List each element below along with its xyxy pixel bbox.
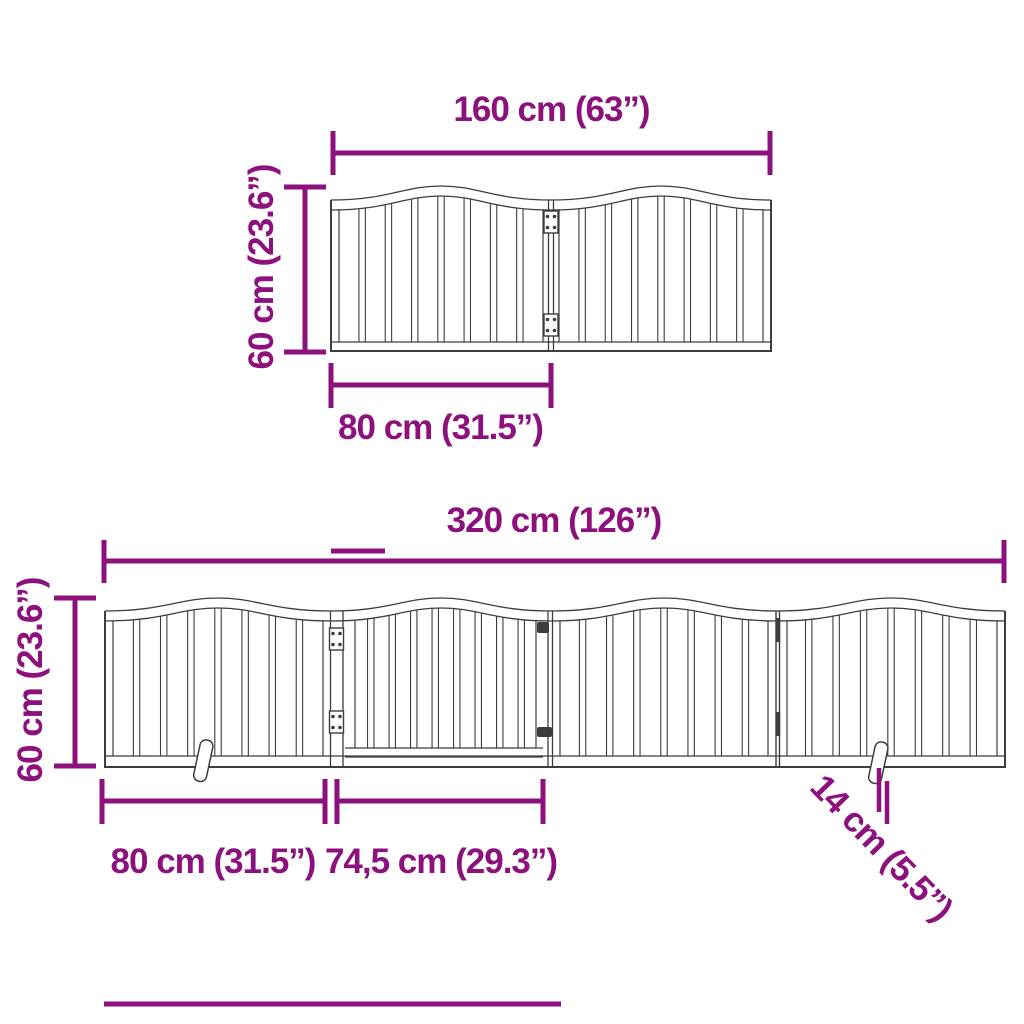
top-gate-panel-width-label: 80 cm (31.5”) (330, 408, 551, 448)
dimension-diagram: 160 cm (63”) 60 cm (23.6”) 80 cm (31.5”)… (0, 0, 1024, 1024)
top-gate-width-label: 160 cm (63”) (333, 90, 770, 130)
bottom-gate-width-label: 320 cm (126”) (104, 501, 1004, 541)
top-gate-height-label: 60 cm (23.6”) (242, 107, 282, 427)
bottom-gate-height-label: 60 cm (23.6”) (11, 520, 51, 840)
bottom-gate-door-width-label: 74,5 cm (29.3”) (318, 842, 564, 882)
bottom-gate-panel-width-label: 80 cm (31.5”) (90, 842, 336, 882)
